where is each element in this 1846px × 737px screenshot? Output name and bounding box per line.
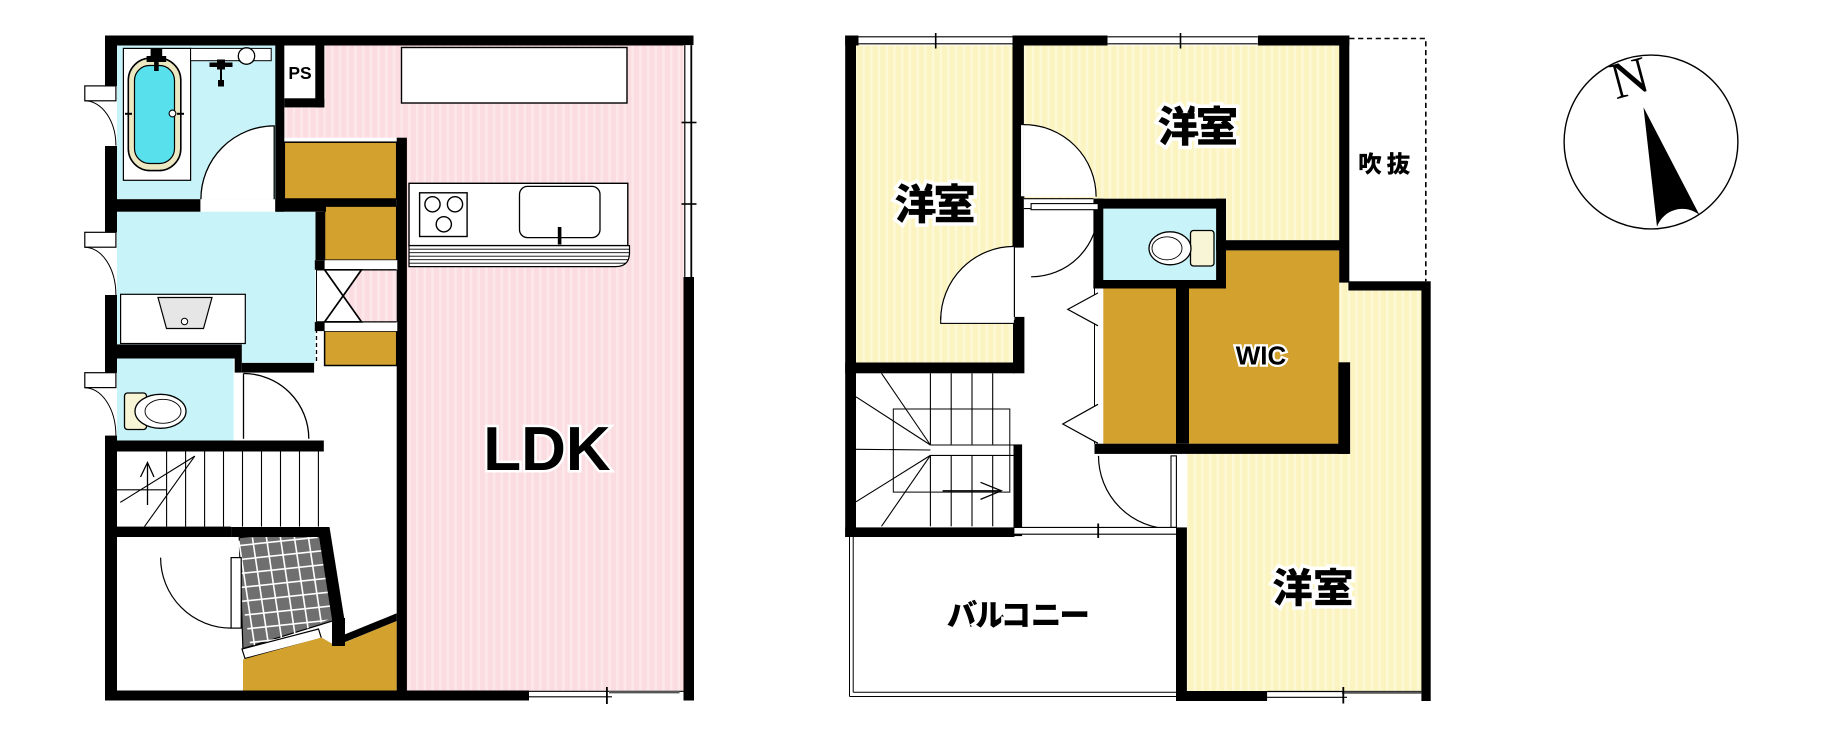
svg-text:WIC: WIC bbox=[1236, 341, 1287, 371]
svg-text:LDK: LDK bbox=[483, 415, 611, 484]
svg-text:PS: PS bbox=[288, 63, 311, 83]
